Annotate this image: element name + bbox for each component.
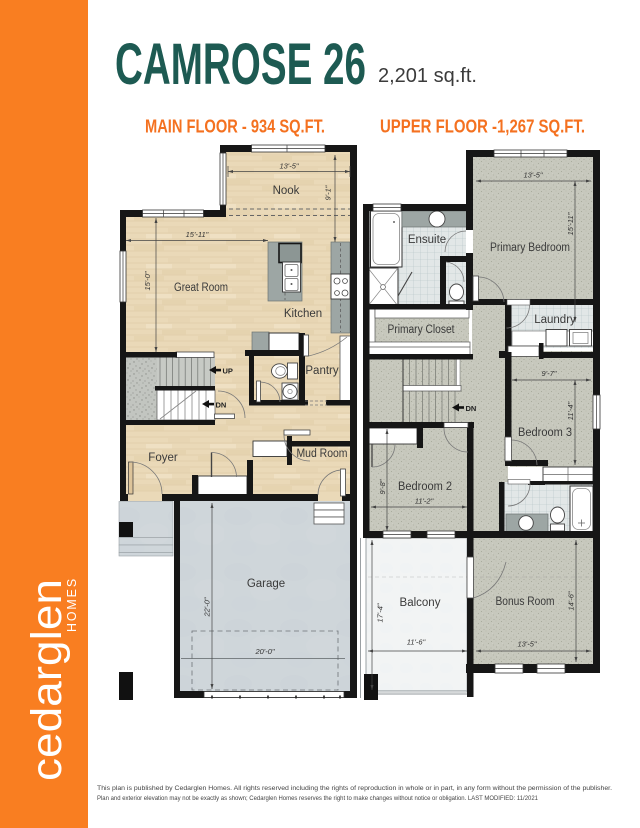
svg-text:15'-11": 15'-11" (566, 212, 575, 235)
svg-text:Plan and exterior elevation ma: Plan and exterior elevation may not be e… (97, 795, 538, 802)
svg-text:Mud Room: Mud Room (297, 448, 348, 460)
svg-text:Ensuite: Ensuite (408, 234, 446, 246)
svg-text:CAMROSE 26: CAMROSE 26 (115, 32, 366, 97)
svg-text:17'-4": 17'-4" (376, 603, 385, 622)
svg-text:11'-2": 11'-2" (415, 497, 434, 506)
svg-text:DN: DN (466, 404, 477, 413)
svg-text:15'-0": 15'-0" (143, 271, 152, 290)
svg-text:Kitchen: Kitchen (284, 308, 322, 320)
svg-text:Primary Closet: Primary Closet (388, 324, 456, 336)
svg-text:13'-5": 13'-5" (517, 640, 536, 649)
svg-text:9'-8": 9'-8" (378, 479, 387, 494)
svg-text:Bedroom 3: Bedroom 3 (518, 427, 572, 439)
svg-text:Bedroom 2: Bedroom 2 (398, 481, 452, 493)
svg-text:14'-6": 14'-6" (567, 591, 576, 610)
svg-text:Foyer: Foyer (148, 452, 178, 464)
svg-text:22'-0": 22'-0" (203, 597, 212, 617)
svg-text:HOMES: HOMES (64, 577, 79, 632)
svg-text:Nook: Nook (273, 185, 300, 197)
svg-text:Garage: Garage (247, 578, 285, 590)
svg-text:Bonus Room: Bonus Room (496, 596, 555, 608)
svg-text:15'-11": 15'-11" (186, 230, 209, 239)
svg-text:Pantry: Pantry (305, 365, 338, 377)
svg-text:Primary Bedroom: Primary Bedroom (490, 242, 570, 254)
svg-text:9'-1": 9'-1" (324, 185, 333, 200)
svg-text:13'-5": 13'-5" (279, 162, 298, 171)
svg-text:2,201 sq.ft.: 2,201 sq.ft. (378, 65, 477, 87)
svg-text:Great Room: Great Room (174, 282, 228, 294)
svg-text:MAIN FLOOR - 934 SQ.FT.: MAIN FLOOR - 934 SQ.FT. (145, 117, 325, 137)
svg-text:Laundry: Laundry (534, 314, 576, 326)
svg-text:11'-4": 11'-4" (566, 401, 575, 420)
svg-text:11'-6": 11'-6" (407, 638, 426, 647)
svg-text:This plan is published by Ceda: This plan is published by Cedarglen Home… (97, 785, 612, 792)
svg-text:UPPER FLOOR -1,267 SQ.FT.: UPPER FLOOR -1,267 SQ.FT. (380, 117, 585, 137)
svg-text:DN: DN (216, 401, 227, 410)
svg-text:UP: UP (223, 367, 233, 376)
svg-text:13'-5": 13'-5" (523, 171, 542, 180)
svg-text:9'-7": 9'-7" (542, 369, 557, 378)
svg-text:Balcony: Balcony (400, 597, 441, 609)
svg-text:20'-0": 20'-0" (254, 647, 274, 656)
